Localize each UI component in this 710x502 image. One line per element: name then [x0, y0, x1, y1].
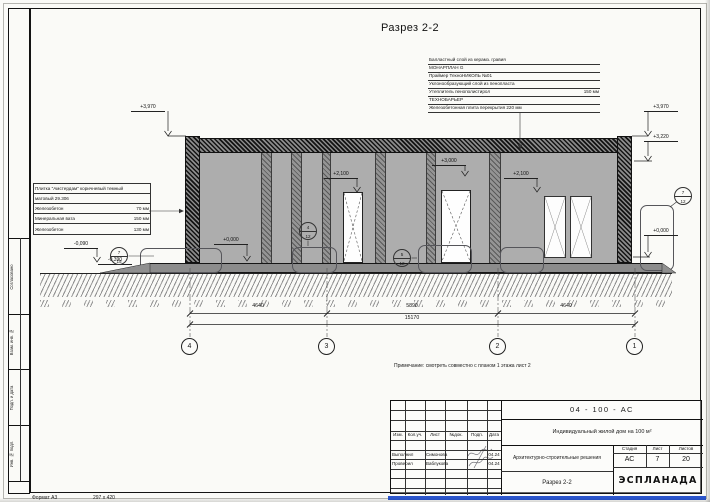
sheet-label: Лист — [646, 446, 669, 451]
col-izm: Изм. — [391, 432, 405, 437]
window-cross-lines — [545, 197, 591, 257]
leader-lines — [129, 113, 677, 258]
section-name: Архитектурно-строительные решения — [501, 445, 613, 471]
sheets-label: Листов — [669, 446, 703, 451]
stamp-role: Выполнил — [392, 452, 425, 457]
sheets-value: 20 — [669, 456, 703, 463]
strip-cell — [9, 481, 29, 493]
scan-shadow-right — [705, 0, 710, 502]
strip-label: Взам. инв. № — [9, 329, 20, 355]
stamp-role: Проверил — [392, 461, 425, 466]
strip-label: Согласовано — [9, 264, 20, 289]
document-number: 04 - 100 - АС — [501, 401, 703, 419]
col-data: Дата — [487, 432, 501, 437]
strip-cell: Инв. № подл. — [9, 425, 29, 481]
stamp-date: 04.24 — [487, 461, 501, 466]
strip-cell: Подп. и дата — [9, 369, 29, 425]
margin-strip: Согласовано Взам. инв. № Подп. и дата Ин… — [8, 8, 30, 494]
stage-label: Стадия — [613, 446, 646, 451]
strip-cell: Взам. инв. № — [9, 314, 29, 369]
stamp-name: Симонова — [426, 452, 466, 457]
col-kol: Кол.уч. — [405, 432, 425, 437]
door-swing-lines — [344, 191, 470, 261]
stamp-date: 04.24 — [487, 452, 501, 457]
col-list: Лист — [425, 432, 445, 437]
axis-lines — [190, 268, 635, 337]
project-name: Индивидуальный жилой дом на 100 м² — [501, 419, 703, 445]
elevation-arrows — [94, 111, 653, 262]
stage-value: АС — [613, 456, 646, 463]
stamp-name: Ваблукова — [426, 461, 466, 466]
col-podp: Подп. — [467, 432, 487, 437]
title-block: Изм. Кол.уч. Лист №док. Подп. Дата Выпол… — [390, 400, 702, 494]
dimension-lines — [187, 311, 638, 328]
drawing-sheet: Разрез 2-2 Балластный слой из керамз. гр… — [0, 0, 710, 502]
strip-cell: Согласовано — [9, 238, 29, 314]
strip-label: Инв. № подл. — [9, 440, 20, 467]
scan-shadow-bottom — [0, 498, 710, 502]
strip-label: Подп. и дата — [9, 385, 20, 410]
col-doc: №док. — [445, 432, 467, 437]
sheet-value: 7 — [646, 456, 669, 463]
leader-arrowheads — [179, 145, 522, 214]
floor-slopes — [100, 263, 676, 273]
company-logo: ЭСПЛАНАДА — [613, 467, 703, 495]
sheet-title: Разрез 2-2 — [501, 471, 613, 495]
